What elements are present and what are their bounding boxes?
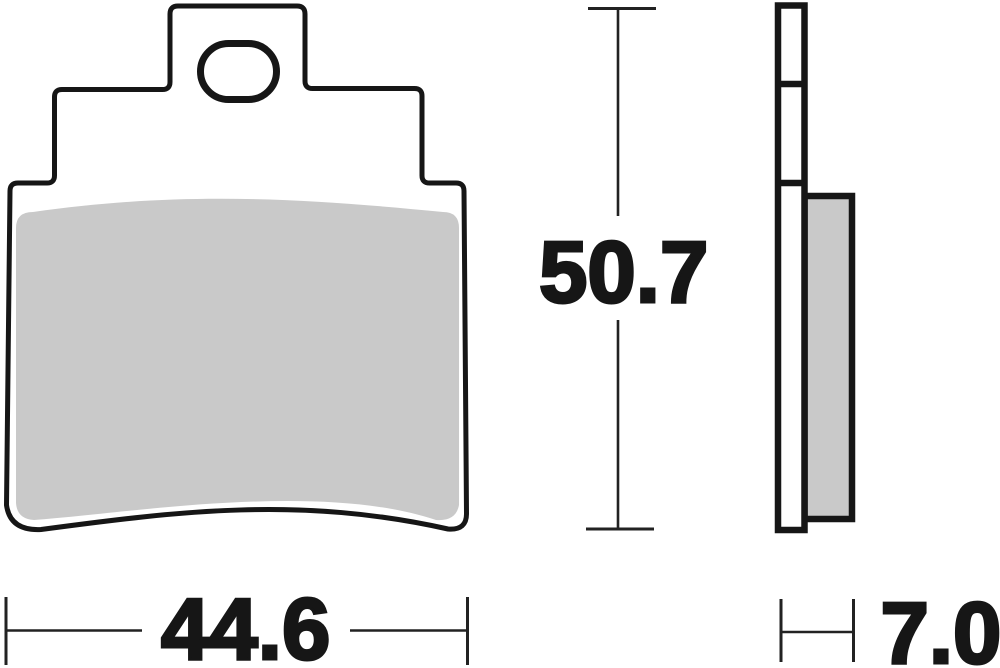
svg-text:7.0: 7.0 [881,585,1000,668]
svg-text:50.7: 50.7 [539,224,708,321]
svg-text:44.6: 44.6 [161,581,330,668]
